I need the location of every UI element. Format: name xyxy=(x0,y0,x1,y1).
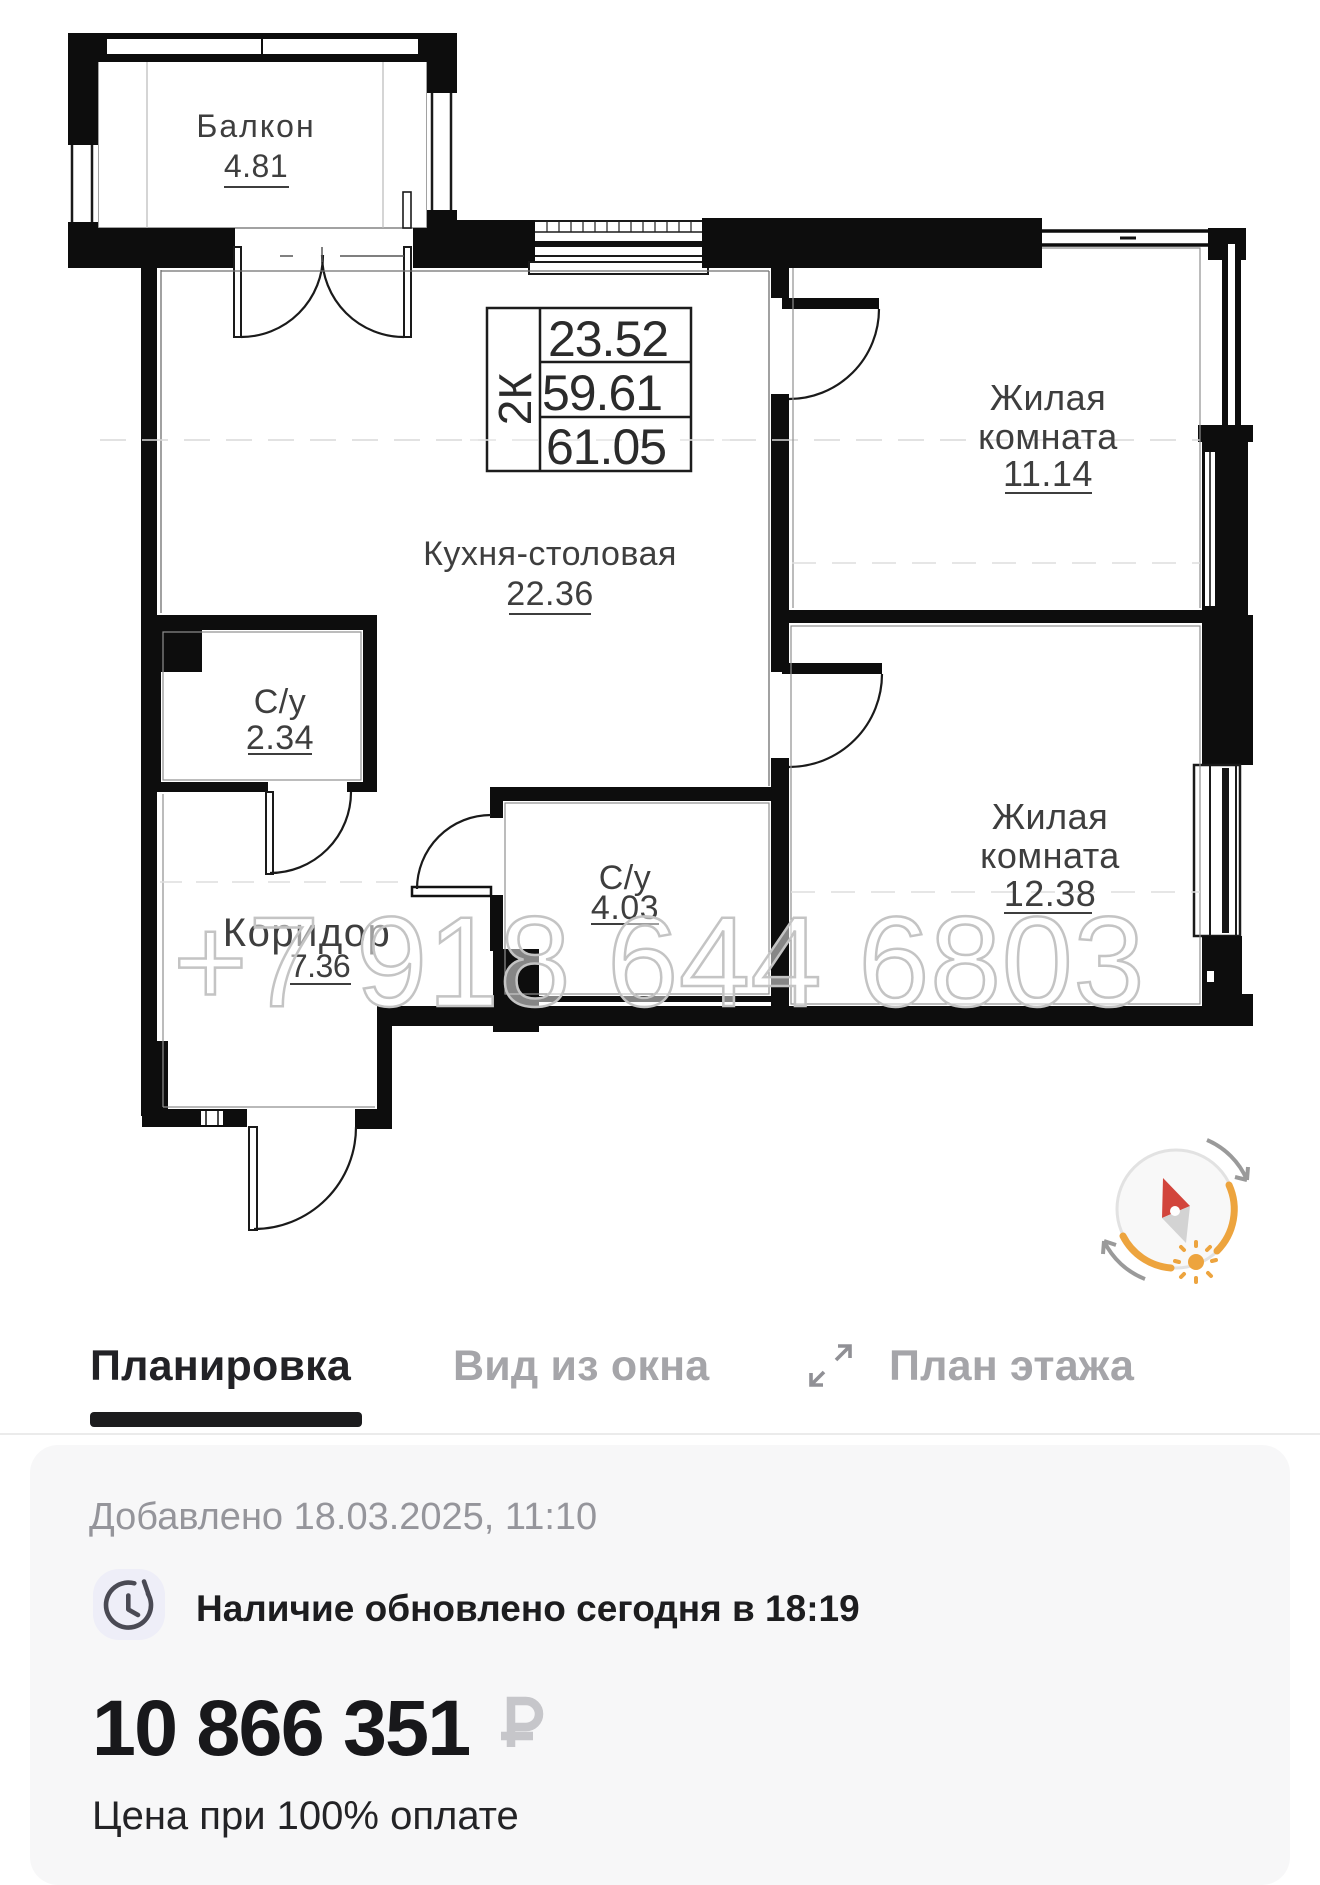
svg-text:+7 918 644 6803: +7 918 644 6803 xyxy=(173,891,1145,1034)
svg-text:22.36: 22.36 xyxy=(506,575,594,613)
svg-text:комната: комната xyxy=(978,416,1118,457)
svg-text:11.14: 11.14 xyxy=(1003,453,1093,494)
svg-text:Жилая: Жилая xyxy=(992,796,1108,837)
svg-text:Кухня-столовая: Кухня-столовая xyxy=(423,535,677,573)
svg-text:Балкон: Балкон xyxy=(196,108,315,144)
svg-text:2К: 2К xyxy=(489,373,541,426)
svg-text:Жилая: Жилая xyxy=(990,377,1106,418)
svg-text:С/у: С/у xyxy=(254,683,307,721)
svg-text:59.61: 59.61 xyxy=(542,365,662,421)
svg-text:комната: комната xyxy=(980,835,1120,876)
svg-text:2.34: 2.34 xyxy=(246,719,314,757)
svg-text:61.05: 61.05 xyxy=(546,419,666,475)
svg-text:23.52: 23.52 xyxy=(548,311,668,367)
svg-text:4.81: 4.81 xyxy=(224,148,288,184)
